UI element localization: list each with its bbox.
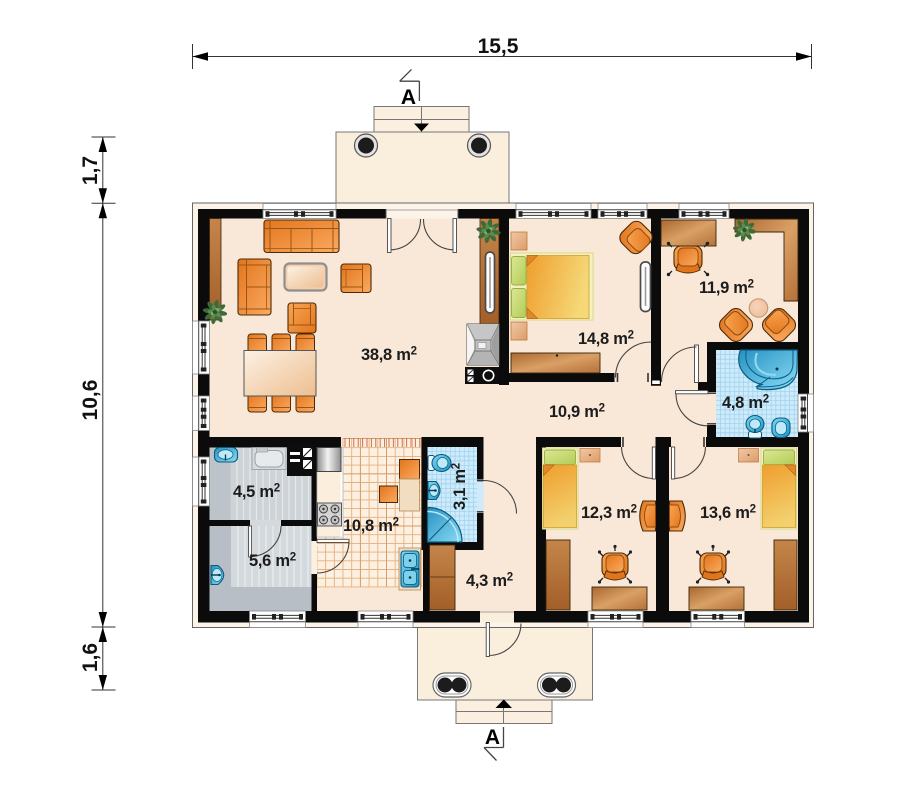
svg-text:A: A (401, 86, 416, 109)
svg-text:10,9 m2: 10,9 m2 (549, 403, 605, 422)
svg-text:3,1 m2: 3,1 m2 (451, 463, 470, 510)
svg-text:4,3 m2: 4,3 m2 (466, 572, 513, 591)
svg-text:12,3 m2: 12,3 m2 (581, 504, 637, 523)
svg-text:14,8 m2: 14,8 m2 (578, 330, 634, 349)
svg-text:13,6 m2: 13,6 m2 (700, 504, 756, 523)
svg-text:10,6: 10,6 (79, 380, 102, 421)
svg-text:1,6: 1,6 (79, 643, 102, 672)
svg-text:1,7: 1,7 (79, 156, 102, 185)
svg-text:A: A (485, 726, 500, 749)
svg-text:5,6 m2: 5,6 m2 (249, 552, 296, 571)
svg-text:4,5 m2: 4,5 m2 (233, 483, 280, 502)
svg-text:4,8 m2: 4,8 m2 (722, 394, 769, 413)
svg-text:10,8 m2: 10,8 m2 (343, 517, 399, 536)
svg-text:11,9 m2: 11,9 m2 (699, 279, 754, 298)
svg-text:15,5: 15,5 (478, 35, 519, 58)
svg-text:38,8 m2: 38,8 m2 (361, 346, 417, 365)
